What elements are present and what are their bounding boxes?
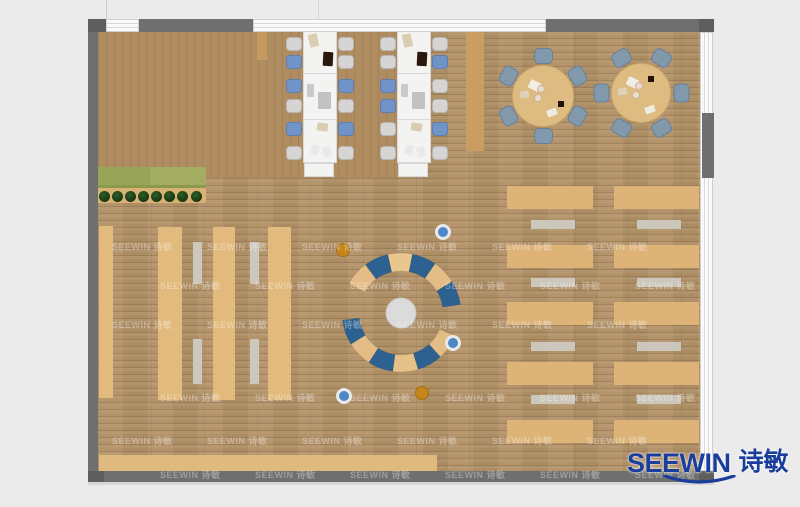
plant-icon: [164, 191, 175, 202]
desk: [614, 186, 699, 209]
wall-left: [88, 19, 98, 482]
wall-right-block: [702, 113, 714, 178]
chair: [432, 55, 448, 69]
top-window-band: [253, 19, 546, 32]
table-item: [318, 92, 331, 109]
floor-plan-canvas: SEEWIN 诗敏 SEEWIN 诗敏SEEWIN 诗敏SEEWIN 诗敏SEE…: [0, 0, 800, 507]
table-item: [316, 122, 328, 131]
desk: [507, 420, 593, 443]
table-divider: [303, 73, 337, 74]
table-divider: [397, 119, 431, 120]
lounge-center-table: [386, 298, 416, 328]
chair: [432, 79, 448, 93]
table-divider: [397, 73, 431, 74]
desk-bench: [531, 395, 575, 404]
chair: [380, 55, 396, 69]
right-window-band: [700, 32, 713, 471]
plant-icon: [151, 191, 162, 202]
plate: [632, 91, 640, 99]
chair: [534, 128, 553, 144]
wall-corner-bl: [88, 471, 104, 482]
table-item: [417, 52, 428, 67]
chair: [338, 55, 354, 69]
aisle-bench: [250, 339, 259, 384]
desk-bench: [531, 278, 575, 287]
desk: [614, 362, 699, 385]
desk-bench: [637, 395, 681, 404]
chair: [593, 84, 609, 103]
shelf-row: [213, 227, 235, 400]
chair: [338, 79, 354, 93]
table-item: [323, 52, 334, 67]
wall-bottom: [88, 471, 714, 482]
side-counter: [466, 32, 484, 151]
dark-item: [648, 76, 654, 82]
desk: [507, 245, 593, 268]
chair: [380, 122, 396, 136]
plant-icon: [138, 191, 149, 202]
chair: [286, 79, 302, 93]
chair: [673, 84, 689, 103]
chair: [432, 37, 448, 51]
orange-stool: [336, 243, 350, 257]
wall-shadow: [88, 482, 714, 485]
table-item: [401, 84, 408, 97]
chair: [380, 99, 396, 113]
table-item: [307, 84, 314, 97]
wall-corner-tl: [88, 19, 106, 32]
seewin-logo: SEEWIN 诗敏: [627, 450, 789, 477]
column: [257, 32, 267, 60]
lounge-seat-segment: [388, 253, 413, 272]
chair: [286, 37, 302, 51]
chair: [432, 122, 448, 136]
dark-item: [558, 101, 564, 107]
plant-icon: [125, 191, 136, 202]
table-divider: [303, 119, 337, 120]
top-door-gap: [106, 19, 139, 32]
table-item: [412, 92, 425, 109]
chair: [286, 146, 302, 160]
desk-bench: [637, 220, 681, 229]
plant-icon: [191, 191, 202, 202]
chair: [380, 146, 396, 160]
chair: [380, 37, 396, 51]
bottom-bench: [99, 455, 437, 471]
desk: [507, 186, 593, 209]
plant-icon: [177, 191, 188, 202]
table-end-unit: [398, 163, 428, 177]
plant-icon: [112, 191, 123, 202]
chair: [286, 122, 302, 136]
plate: [537, 85, 545, 93]
chair: [338, 122, 354, 136]
plate: [534, 94, 542, 102]
plate: [635, 82, 643, 90]
chair: [338, 99, 354, 113]
table-item: [410, 122, 422, 131]
shelf-row: [99, 226, 113, 398]
chair: [534, 48, 553, 64]
circular-lounge-seating: [335, 247, 467, 379]
desk: [614, 302, 699, 325]
chair: [432, 99, 448, 113]
mullion-line-mid: [318, 0, 319, 20]
planter-box-shade: [98, 167, 150, 187]
chair: [338, 37, 354, 51]
desk-bench: [531, 220, 575, 229]
desk: [614, 420, 699, 443]
orange-stool: [415, 386, 429, 400]
aisle-bench: [250, 242, 259, 284]
blue-stool: [336, 388, 352, 404]
desk-bench: [637, 278, 681, 287]
desk: [507, 302, 593, 325]
shelf-row: [268, 227, 291, 400]
shelf-row: [158, 227, 182, 400]
desk-bench: [531, 342, 575, 351]
logo-swoosh-icon: [663, 475, 737, 487]
desk: [507, 362, 593, 385]
desk: [614, 245, 699, 268]
mullion-line-left: [106, 0, 107, 19]
logo-cjk-characters: 诗敏: [739, 450, 789, 475]
chair: [380, 79, 396, 93]
wall-top-right: [546, 19, 713, 32]
blue-stool: [445, 335, 461, 351]
desk-bench: [637, 342, 681, 351]
aisle-bench: [193, 339, 202, 384]
wall-corner-tr: [699, 19, 714, 32]
plant-icon: [99, 191, 110, 202]
chair: [286, 55, 302, 69]
aisle-bench: [193, 242, 202, 284]
blue-stool: [435, 224, 451, 240]
chair: [338, 146, 354, 160]
wall-top-left: [139, 19, 253, 32]
table-end-unit: [304, 163, 334, 177]
chair: [432, 146, 448, 160]
chair: [286, 99, 302, 113]
logo-wordmark: SEEWIN: [627, 450, 731, 477]
